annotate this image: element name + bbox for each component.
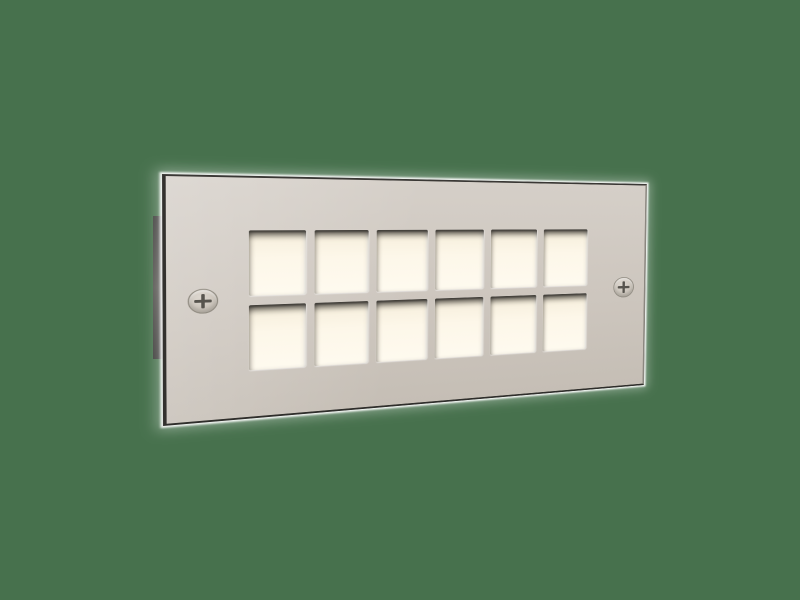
light-window (249, 303, 306, 370)
light-window (435, 230, 484, 290)
faceplate (162, 174, 647, 426)
light-window (376, 299, 427, 362)
light-window (543, 229, 587, 286)
light-window (315, 230, 369, 294)
product-render-canvas (0, 0, 800, 600)
light-window (249, 230, 306, 296)
light-window (543, 293, 587, 351)
light-window (314, 301, 368, 366)
light-window (490, 295, 536, 355)
light-window (491, 229, 537, 288)
screw-slot-horizontal-icon (618, 286, 630, 289)
light-window (376, 230, 427, 292)
screw-slot-horizontal-icon (194, 299, 212, 302)
light-window-grid (166, 176, 646, 424)
light-window (435, 297, 484, 359)
